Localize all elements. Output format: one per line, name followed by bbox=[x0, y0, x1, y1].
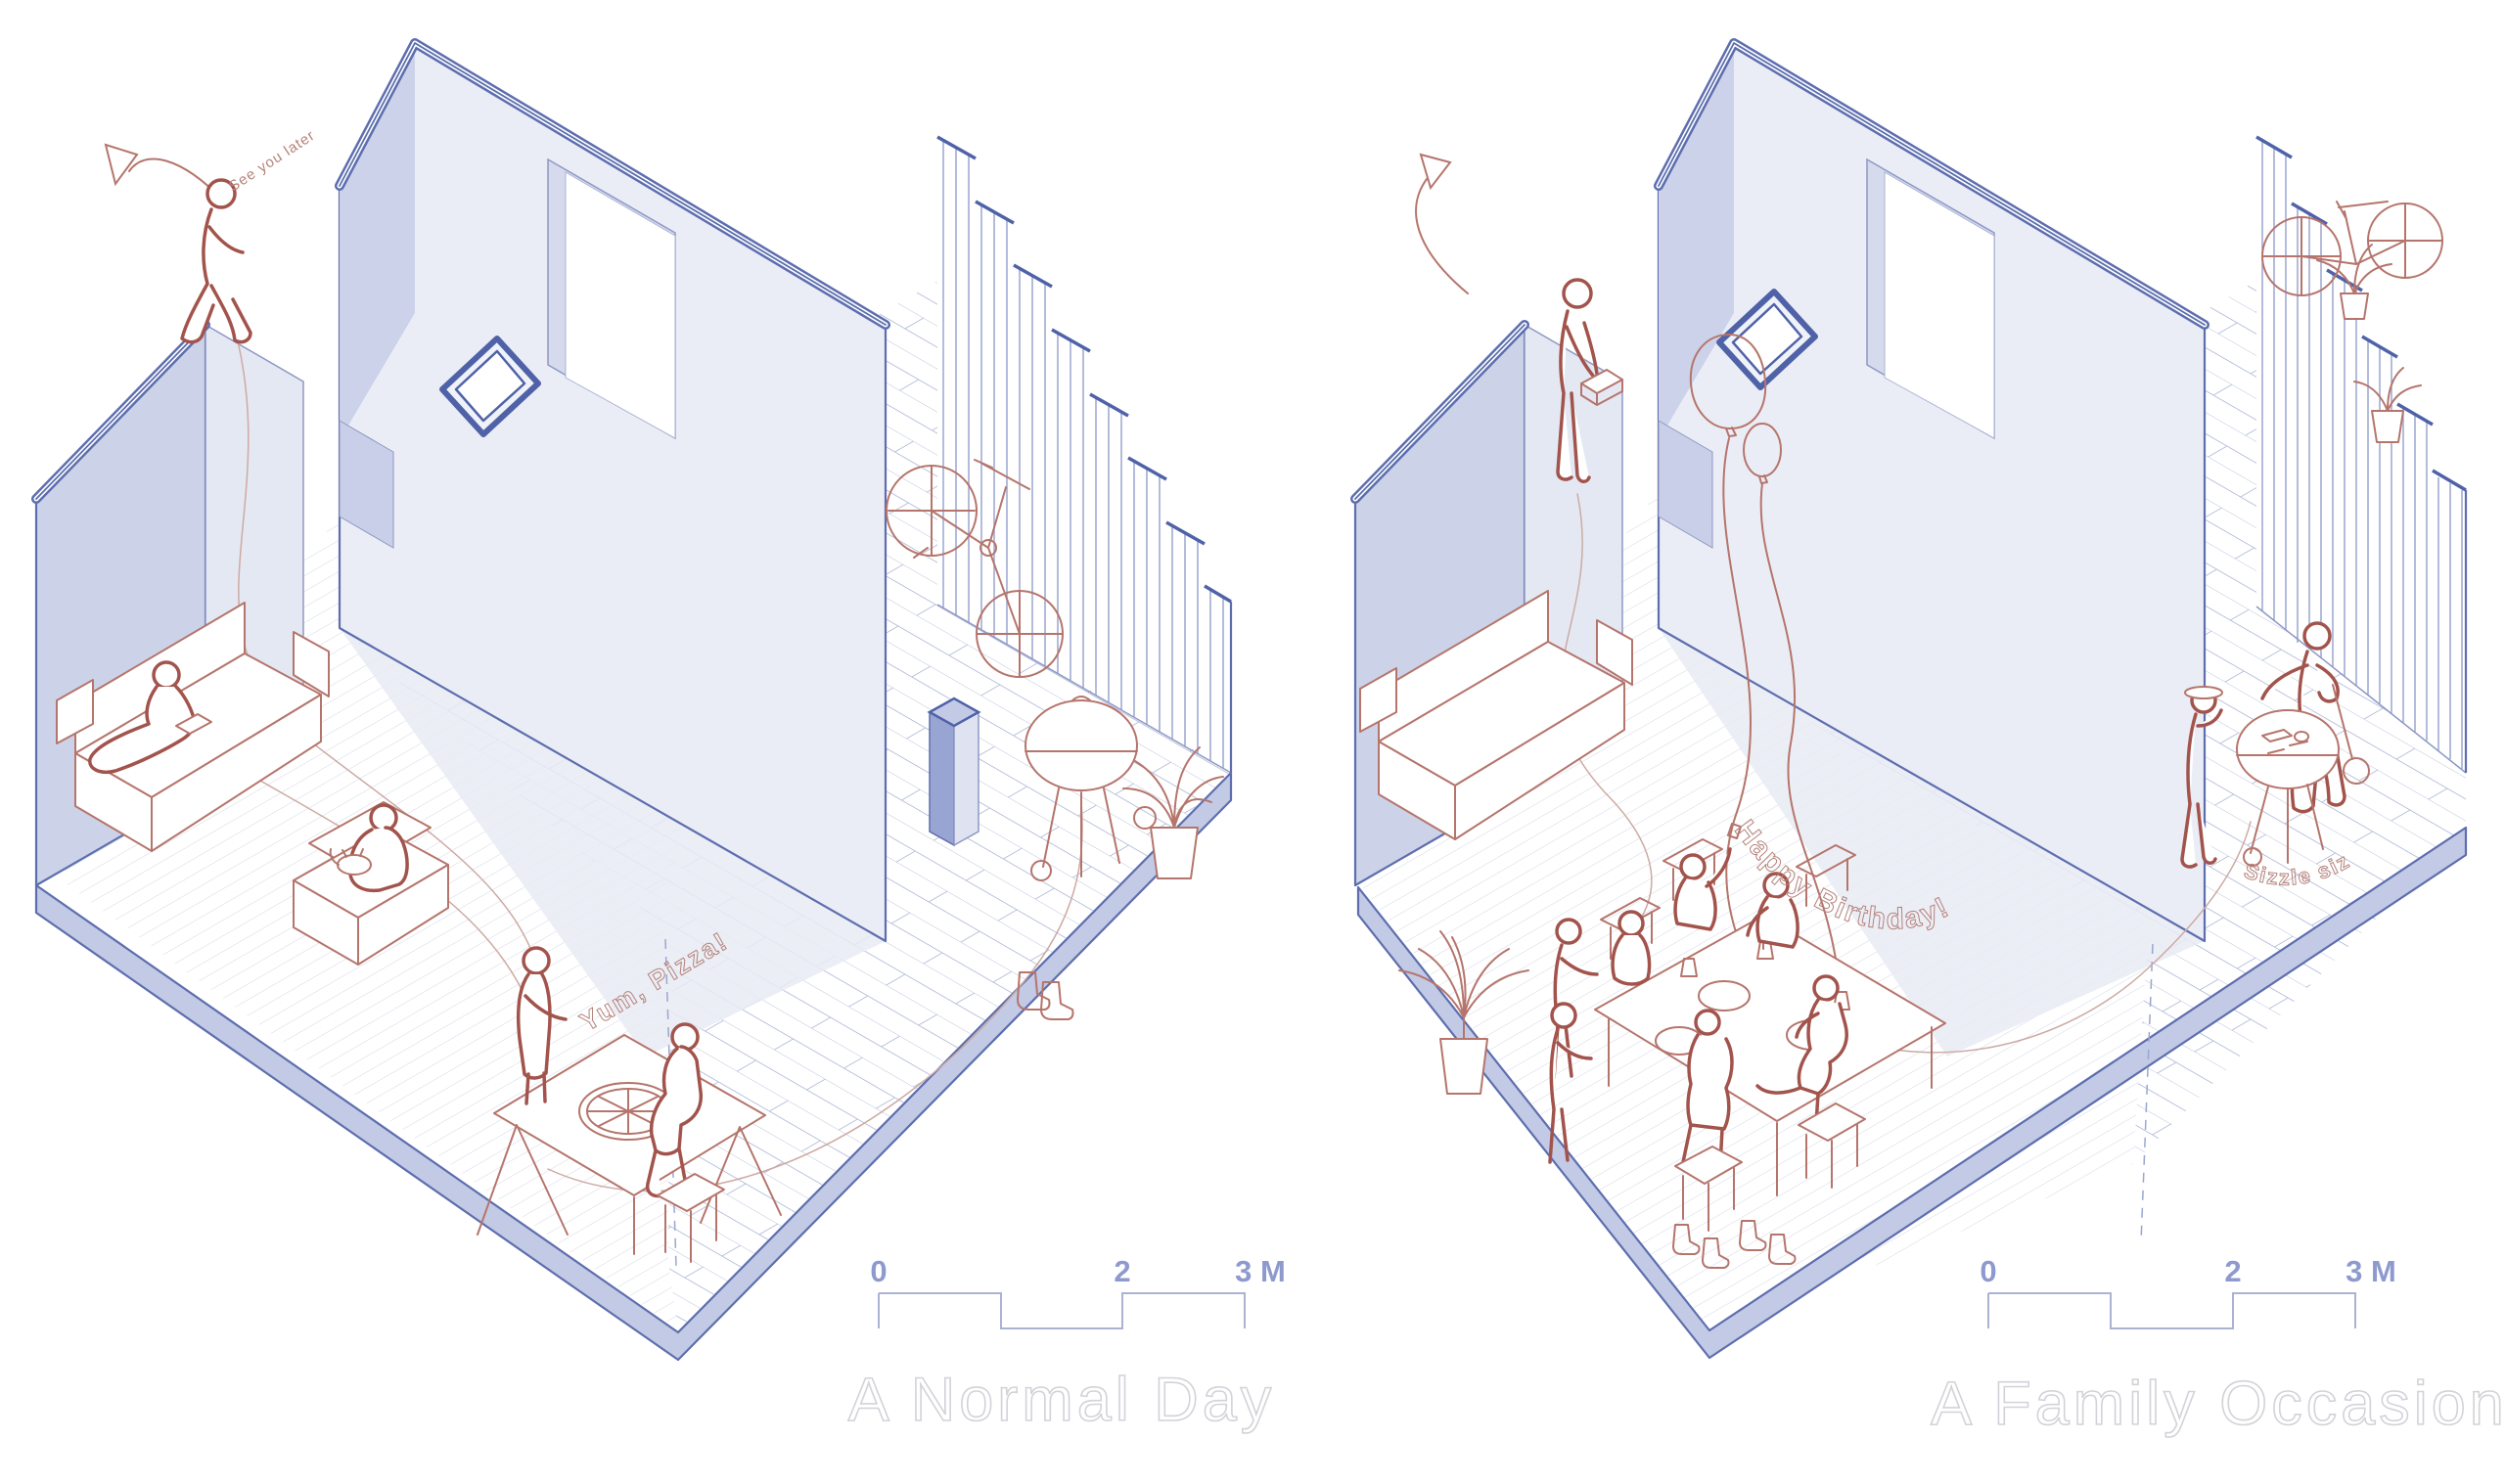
person-head bbox=[524, 948, 549, 973]
scale-bar-shape bbox=[1988, 1293, 2355, 1328]
arrival-arrow bbox=[1416, 155, 1468, 293]
sun-hat bbox=[2185, 687, 2222, 698]
bike-frame bbox=[2262, 202, 2442, 295]
person-head bbox=[1681, 855, 1705, 878]
plant-pot bbox=[1151, 828, 1198, 878]
scale-tick-2: 2 bbox=[2224, 1254, 2241, 1288]
left-title: A Normal Day bbox=[848, 1366, 1276, 1434]
arrow-swoosh bbox=[1416, 171, 1468, 293]
scale-tick-0: 0 bbox=[1980, 1254, 1996, 1288]
post-right-face bbox=[954, 712, 979, 845]
cat-body bbox=[338, 855, 371, 875]
left-patio-post bbox=[930, 698, 979, 845]
person-body bbox=[182, 209, 250, 342]
person-head bbox=[1814, 976, 1838, 1000]
bicycle-on-fence-right bbox=[2262, 202, 2442, 295]
person-head bbox=[1619, 912, 1643, 935]
scale-tick-3m: 3 M bbox=[2346, 1254, 2396, 1288]
hanging-pot bbox=[2341, 293, 2368, 319]
post-left-face bbox=[930, 712, 954, 845]
departure-arrow bbox=[106, 145, 223, 201]
plant-pot bbox=[1440, 1039, 1487, 1094]
scale-bar-shape bbox=[879, 1293, 1245, 1328]
left-house: See you later Yum, Pizza! 0 2 3 M A Norm… bbox=[36, 43, 1286, 1434]
person-walking-out bbox=[182, 180, 250, 342]
grill-bowl bbox=[2237, 710, 2339, 788]
grill-dome bbox=[1025, 700, 1137, 790]
left-scale-bar: 0 2 3 M bbox=[870, 1254, 1285, 1328]
annotation-see-you-later: See you later bbox=[226, 127, 318, 195]
right-title: A Family Occasion bbox=[1931, 1370, 2505, 1438]
person-head bbox=[1696, 1011, 1719, 1034]
scale-tick-3m: 3 M bbox=[1235, 1254, 1286, 1288]
person-body bbox=[1613, 935, 1650, 984]
person-head bbox=[2304, 623, 2330, 649]
person-head bbox=[1557, 920, 1580, 943]
person-head bbox=[154, 662, 179, 688]
person-head bbox=[1552, 1004, 1575, 1027]
person-head bbox=[1564, 280, 1591, 307]
scale-tick-0: 0 bbox=[870, 1254, 887, 1288]
scale-tick-2: 2 bbox=[1114, 1254, 1130, 1288]
potted-plant-pot bbox=[2372, 411, 2403, 442]
potted-plant-leaves bbox=[2354, 368, 2421, 411]
right-scale-bar: 0 2 3 M bbox=[1980, 1254, 2395, 1328]
arrow-head bbox=[106, 145, 137, 184]
person-seated-woman bbox=[1613, 912, 1650, 984]
diagram-canvas: See you later Yum, Pizza! 0 2 3 M A Norm… bbox=[0, 0, 2505, 1484]
person-head bbox=[371, 805, 396, 831]
